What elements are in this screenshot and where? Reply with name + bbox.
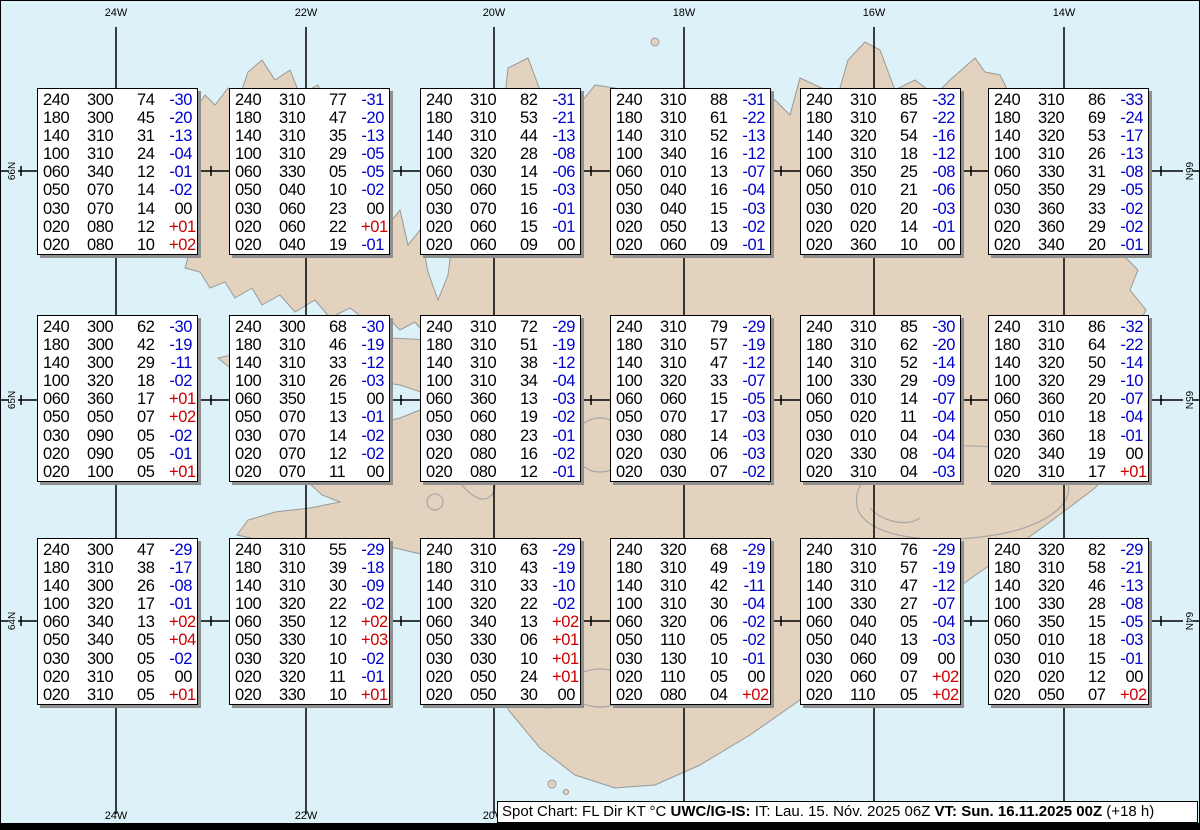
fl-value: 060 <box>616 163 660 181</box>
kt-value: 18 <box>137 372 169 390</box>
spot-row: 10032022-02 <box>426 595 575 613</box>
fl-value: 240 <box>426 541 470 559</box>
temp-value: -21 <box>1120 559 1143 577</box>
temp-value: -13 <box>169 127 192 145</box>
dir-value: 060 <box>660 390 710 408</box>
fl-value: 180 <box>235 559 279 577</box>
temp-value: -02 <box>552 408 575 426</box>
spot-row: 03036018-01 <box>994 427 1143 445</box>
kt-value: 17 <box>137 595 169 613</box>
temp-value: +01 <box>552 650 579 668</box>
spot-row: 14031030-09 <box>235 577 384 595</box>
temp-value: -02 <box>742 613 765 631</box>
spot-row: 24032068-29 <box>616 541 765 559</box>
temp-value: -04 <box>932 445 955 463</box>
fl-value: 240 <box>994 541 1038 559</box>
spot-row: 02006015-01 <box>426 218 575 236</box>
fl-value: 100 <box>616 145 660 163</box>
dir-value: 030 <box>660 445 710 463</box>
dir-value: 020 <box>850 200 900 218</box>
temp-value: -30 <box>169 91 192 109</box>
dir-value: 310 <box>850 318 900 336</box>
temp-value: 00 <box>552 686 575 704</box>
fl-value: 030 <box>806 650 850 668</box>
temp-value: -08 <box>1120 163 1143 181</box>
spot-row: 14031035-13 <box>235 127 384 145</box>
kt-value: 10 <box>137 236 169 254</box>
dir-value: 320 <box>87 595 137 613</box>
dir-value: 310 <box>470 336 520 354</box>
spot-row: 06006015-05 <box>616 390 765 408</box>
spot-row: 06036013-03 <box>426 390 575 408</box>
spot-row: 18031061-22 <box>616 109 765 127</box>
spot-row: 05011005-02 <box>616 631 765 649</box>
kt-value: 86 <box>1088 318 1120 336</box>
fl-value: 050 <box>616 181 660 199</box>
kt-value: 07 <box>137 408 169 426</box>
dir-value: 310 <box>470 318 520 336</box>
dir-value: 320 <box>279 650 329 668</box>
dir-value: 340 <box>470 613 520 631</box>
fl-value: 020 <box>806 236 850 254</box>
fl-value: 020 <box>43 236 87 254</box>
temp-value: -12 <box>742 354 765 372</box>
dir-value: 310 <box>660 318 710 336</box>
spot-row: 02032011-01 <box>235 668 384 686</box>
fl-value: 050 <box>43 181 87 199</box>
temp-value: -01 <box>1120 427 1143 445</box>
fl-value: 020 <box>43 686 87 704</box>
spot-row: 24031086-33 <box>994 91 1143 109</box>
spot-row: 10031024-04 <box>43 145 192 163</box>
dir-value: 320 <box>470 145 520 163</box>
dir-value: 030 <box>470 650 520 668</box>
kt-value: 10 <box>329 686 361 704</box>
temp-value: +01 <box>169 218 196 236</box>
latitude-label-left: 66N <box>8 161 18 181</box>
kt-value: 43 <box>520 559 552 577</box>
spot-row: 06003014-06 <box>426 163 575 181</box>
fl-value: 050 <box>235 631 279 649</box>
spot-row: 18032069-24 <box>994 109 1143 127</box>
kt-value: 29 <box>1088 372 1120 390</box>
spot-box: 24031086-3318032069-2414032053-171003102… <box>988 88 1149 255</box>
kt-value: 11 <box>329 463 361 481</box>
dir-value: 010 <box>850 181 900 199</box>
fl-value: 100 <box>616 372 660 390</box>
spot-row: 10031030-04 <box>616 595 765 613</box>
kt-value: 29 <box>1088 218 1120 236</box>
kt-value: 10 <box>710 650 742 668</box>
spot-row: 03001015-01 <box>994 650 1143 668</box>
dir-value: 080 <box>470 427 520 445</box>
kt-value: 16 <box>710 181 742 199</box>
fl-value: 180 <box>994 559 1038 577</box>
spot-row: 06032006-02 <box>616 613 765 631</box>
spot-box: 24031063-2918031043-1914031033-101003202… <box>420 538 581 705</box>
fl-value: 050 <box>994 408 1038 426</box>
fl-value: 180 <box>235 109 279 127</box>
temp-value: -03 <box>742 427 765 445</box>
kt-value: 24 <box>137 145 169 163</box>
temp-value: -08 <box>1120 595 1143 613</box>
kt-value: 85 <box>900 91 932 109</box>
temp-value: -03 <box>552 181 575 199</box>
kt-value: 05 <box>900 686 932 704</box>
spot-box: 24032068-2918031049-1914031042-111003103… <box>610 538 771 705</box>
kt-value: 82 <box>520 91 552 109</box>
dir-value: 320 <box>660 613 710 631</box>
dir-value: 310 <box>850 336 900 354</box>
temp-value: 00 <box>932 236 955 254</box>
fl-value: 240 <box>426 91 470 109</box>
fl-value: 180 <box>806 336 850 354</box>
temp-value: -02 <box>169 372 192 390</box>
fl-value: 050 <box>235 408 279 426</box>
spot-row: 03032010-02 <box>235 650 384 668</box>
fl-value: 180 <box>806 559 850 577</box>
spot-row: 24031085-30 <box>806 318 955 336</box>
fl-value: 140 <box>616 127 660 145</box>
spot-box: 24031082-3118031053-2114031044-131003202… <box>420 88 581 255</box>
kt-value: 72 <box>520 318 552 336</box>
temp-value: +02 <box>932 668 959 686</box>
temp-value: -29 <box>169 541 192 559</box>
temp-value: -02 <box>1120 218 1143 236</box>
temp-value: -07 <box>742 163 765 181</box>
fl-value: 020 <box>426 686 470 704</box>
temp-value: -01 <box>552 427 575 445</box>
spot-row: 06004005-04 <box>806 613 955 631</box>
temp-value: -17 <box>169 559 192 577</box>
dir-value: 320 <box>660 541 710 559</box>
dir-value: 310 <box>279 91 329 109</box>
dir-value: 320 <box>1038 541 1088 559</box>
kt-value: 58 <box>1088 559 1120 577</box>
fl-value: 100 <box>426 595 470 613</box>
dir-value: 320 <box>87 372 137 390</box>
dir-value: 320 <box>660 372 710 390</box>
temp-value: -02 <box>361 595 384 613</box>
fl-value: 020 <box>426 236 470 254</box>
spot-row: 10033027-07 <box>806 595 955 613</box>
temp-value: -31 <box>552 91 575 109</box>
temp-value: 00 <box>1120 445 1143 463</box>
spot-row: 18031047-20 <box>235 109 384 127</box>
spot-row: 03030005-02 <box>43 650 192 668</box>
fl-value: 030 <box>235 427 279 445</box>
dir-value: 320 <box>470 595 520 613</box>
fl-value: 180 <box>426 109 470 127</box>
kt-value: 30 <box>329 577 361 595</box>
spot-row: 03036033-02 <box>994 200 1143 218</box>
kt-value: 13 <box>520 390 552 408</box>
temp-value: -29 <box>552 318 575 336</box>
dir-value: 070 <box>279 408 329 426</box>
latitude-label-left: 64N <box>8 611 18 631</box>
footer-bold-text: UWC/IG-IS: <box>671 803 751 820</box>
dir-value: 320 <box>1038 372 1088 390</box>
fl-value: 020 <box>43 668 87 686</box>
kt-value: 28 <box>520 145 552 163</box>
kt-value: 33 <box>329 354 361 372</box>
temp-value: -04 <box>932 427 955 445</box>
dir-value: 310 <box>660 91 710 109</box>
kt-value: 16 <box>710 145 742 163</box>
spot-row: 0200600900 <box>426 236 575 254</box>
dir-value: 300 <box>87 577 137 595</box>
kt-value: 06 <box>710 445 742 463</box>
dir-value: 310 <box>470 559 520 577</box>
fl-value: 180 <box>235 336 279 354</box>
footer-text: Spot Chart: FL Dir KT °C <box>502 803 671 820</box>
kt-value: 05 <box>137 668 169 686</box>
kt-value: 47 <box>710 354 742 372</box>
spot-box: 24031072-2918031051-1914031038-121003103… <box>420 315 581 482</box>
kt-value: 15 <box>329 390 361 408</box>
fl-value: 100 <box>806 145 850 163</box>
spot-row: 06035012+02 <box>235 613 384 631</box>
kt-value: 16 <box>520 200 552 218</box>
kt-value: 13 <box>137 613 169 631</box>
fl-value: 180 <box>43 109 87 127</box>
spot-row: 14031047-12 <box>616 354 765 372</box>
kt-value: 50 <box>1088 354 1120 372</box>
fl-value: 100 <box>994 372 1038 390</box>
fl-value: 140 <box>235 354 279 372</box>
fl-value: 140 <box>994 127 1038 145</box>
temp-value: -02 <box>1120 200 1143 218</box>
fl-value: 240 <box>806 91 850 109</box>
spot-row: 0200503000 <box>426 686 575 704</box>
dir-value: 310 <box>470 91 520 109</box>
longitude-label-bottom: 22W <box>295 810 318 822</box>
kt-value: 12 <box>329 445 361 463</box>
temp-value: +04 <box>169 631 196 649</box>
dir-value: 040 <box>850 631 900 649</box>
fl-value: 140 <box>235 127 279 145</box>
dir-value: 340 <box>87 631 137 649</box>
temp-value: -02 <box>169 650 192 668</box>
kt-value: 13 <box>710 218 742 236</box>
temp-value: -31 <box>742 91 765 109</box>
fl-value: 100 <box>235 595 279 613</box>
dir-value: 300 <box>87 354 137 372</box>
fl-value: 020 <box>235 686 279 704</box>
spot-row: 05035029-05 <box>994 181 1143 199</box>
temp-value: -29 <box>1120 541 1143 559</box>
fl-value: 030 <box>616 650 660 668</box>
temp-value: -05 <box>361 163 384 181</box>
kt-value: 34 <box>520 372 552 390</box>
fl-value: 030 <box>994 650 1038 668</box>
temp-value: -19 <box>361 336 384 354</box>
temp-value: -29 <box>742 318 765 336</box>
spot-row: 02008010+02 <box>43 236 192 254</box>
fl-value: 020 <box>426 445 470 463</box>
spot-row: 24030062-30 <box>43 318 192 336</box>
dir-value: 310 <box>279 336 329 354</box>
kt-value: 47 <box>137 541 169 559</box>
longitude-label-top: 14W <box>1053 7 1076 19</box>
spot-row: 14031033-10 <box>426 577 575 595</box>
temp-value: -05 <box>742 390 765 408</box>
dir-value: 330 <box>279 686 329 704</box>
kt-value: 05 <box>137 686 169 704</box>
dir-value: 340 <box>1038 445 1088 463</box>
temp-value: -10 <box>552 577 575 595</box>
longitude-label-top: 22W <box>295 7 318 19</box>
spot-row: 05033006+01 <box>426 631 575 649</box>
temp-value: -32 <box>1120 318 1143 336</box>
spot-row: 24031088-31 <box>616 91 765 109</box>
spot-box: 24031055-2918031039-1814031030-091003202… <box>229 538 390 705</box>
temp-value: -29 <box>361 541 384 559</box>
fl-value: 180 <box>616 336 660 354</box>
dir-value: 020 <box>850 218 900 236</box>
temp-value: -19 <box>552 336 575 354</box>
kt-value: 76 <box>900 541 932 559</box>
dir-value: 020 <box>850 408 900 426</box>
temp-value: +01 <box>1120 463 1147 481</box>
kt-value: 29 <box>137 354 169 372</box>
temp-value: -13 <box>742 127 765 145</box>
kt-value: 10 <box>520 650 552 668</box>
spot-row: 06033005-05 <box>235 163 384 181</box>
temp-value: -13 <box>1120 145 1143 163</box>
fl-value: 100 <box>426 145 470 163</box>
kt-value: 15 <box>710 200 742 218</box>
dir-value: 310 <box>279 559 329 577</box>
fl-value: 180 <box>426 336 470 354</box>
temp-value: -12 <box>932 577 955 595</box>
kt-value: 20 <box>1088 390 1120 408</box>
dir-value: 340 <box>1038 236 1088 254</box>
spot-row: 0201100500 <box>616 668 765 686</box>
spot-row: 14031047-12 <box>806 577 955 595</box>
spot-box: 24031086-3218031064-2214032050-141003202… <box>988 315 1149 482</box>
dir-value: 320 <box>1038 577 1088 595</box>
dir-value: 300 <box>87 650 137 668</box>
fl-value: 180 <box>426 559 470 577</box>
dir-value: 300 <box>87 91 137 109</box>
spot-row: 03001004-04 <box>806 427 955 445</box>
kt-value: 47 <box>900 577 932 595</box>
spot-row: 14032053-17 <box>994 127 1143 145</box>
spot-row: 0300701400 <box>43 200 192 218</box>
temp-value: -01 <box>169 163 192 181</box>
kt-value: 46 <box>1088 577 1120 595</box>
kt-value: 06 <box>710 613 742 631</box>
spot-row: 18031046-19 <box>235 336 384 354</box>
fl-value: 050 <box>806 181 850 199</box>
spot-row: 10033029-09 <box>806 372 955 390</box>
kt-value: 10 <box>329 181 361 199</box>
temp-value: -30 <box>932 318 955 336</box>
temp-value: +02 <box>742 686 769 704</box>
temp-value: -10 <box>1120 372 1143 390</box>
fl-value: 240 <box>426 318 470 336</box>
temp-value: 00 <box>552 236 575 254</box>
bottom-black-bar <box>0 823 1200 830</box>
temp-value: -01 <box>361 408 384 426</box>
kt-value: 31 <box>1088 163 1120 181</box>
kt-value: 04 <box>900 463 932 481</box>
kt-value: 57 <box>710 336 742 354</box>
kt-value: 26 <box>329 372 361 390</box>
fl-value: 060 <box>235 163 279 181</box>
fl-value: 060 <box>426 613 470 631</box>
dir-value: 310 <box>850 577 900 595</box>
kt-value: 29 <box>1088 181 1120 199</box>
dir-value: 320 <box>1038 127 1088 145</box>
kt-value: 35 <box>329 127 361 145</box>
temp-value: -19 <box>742 559 765 577</box>
dir-value: 010 <box>1038 650 1088 668</box>
fl-value: 100 <box>994 145 1038 163</box>
dir-value: 340 <box>87 613 137 631</box>
longitude-label-top: 16W <box>863 7 886 19</box>
kt-value: 53 <box>520 109 552 127</box>
fl-value: 100 <box>806 595 850 613</box>
kt-value: 17 <box>1088 463 1120 481</box>
dir-value: 110 <box>850 686 900 704</box>
dir-value: 310 <box>87 145 137 163</box>
dir-value: 080 <box>660 686 710 704</box>
fl-value: 020 <box>994 668 1038 686</box>
temp-value: 00 <box>361 200 384 218</box>
fl-value: 020 <box>426 668 470 686</box>
fl-value: 050 <box>43 631 87 649</box>
spot-row: 03003010+01 <box>426 650 575 668</box>
spot-row: 24031076-29 <box>806 541 955 559</box>
fl-value: 140 <box>806 577 850 595</box>
spot-row: 05001018-03 <box>994 631 1143 649</box>
spot-row: 02006009-01 <box>616 236 765 254</box>
temp-value: -01 <box>1120 650 1143 668</box>
spot-row: 14031052-14 <box>806 354 955 372</box>
spot-row: 24031055-29 <box>235 541 384 559</box>
temp-value: -01 <box>552 463 575 481</box>
dir-value: 310 <box>470 127 520 145</box>
kt-value: 12 <box>329 613 361 631</box>
fl-value: 180 <box>994 336 1038 354</box>
kt-value: 12 <box>1088 668 1120 686</box>
kt-value: 13 <box>329 408 361 426</box>
spot-row: 02009005-01 <box>43 445 192 463</box>
kt-value: 63 <box>520 541 552 559</box>
dir-value: 110 <box>660 668 710 686</box>
kt-value: 68 <box>710 541 742 559</box>
fl-value: 020 <box>616 218 660 236</box>
spot-row: 10032033-07 <box>616 372 765 390</box>
kt-value: 10 <box>329 631 361 649</box>
fl-value: 060 <box>994 613 1038 631</box>
temp-value: -18 <box>361 559 384 577</box>
longitude-label-top: 24W <box>105 7 128 19</box>
fl-value: 020 <box>806 218 850 236</box>
dir-value: 080 <box>470 463 520 481</box>
footer-text: (+18 h) <box>1102 803 1154 820</box>
fl-value: 020 <box>235 218 279 236</box>
fl-value: 060 <box>43 613 87 631</box>
kt-value: 13 <box>900 631 932 649</box>
kt-value: 14 <box>900 390 932 408</box>
dir-value: 350 <box>1038 613 1088 631</box>
kt-value: 51 <box>520 336 552 354</box>
spot-row: 24031077-31 <box>235 91 384 109</box>
spot-row: 03004015-03 <box>616 200 765 218</box>
